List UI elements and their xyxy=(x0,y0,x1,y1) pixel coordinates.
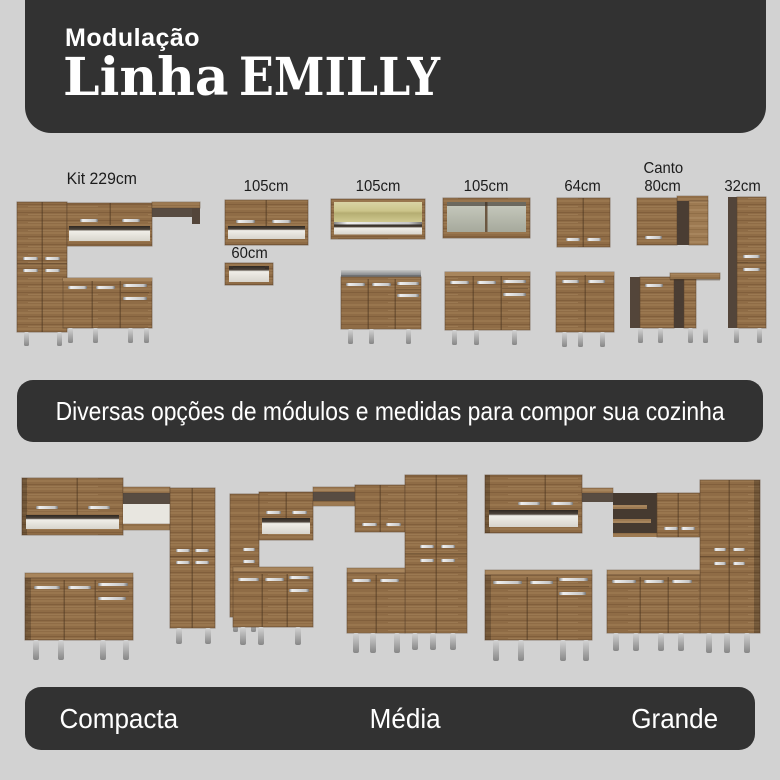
banner-text: Diversas opções de módulos e medidas par… xyxy=(56,396,725,427)
module-105-sink-illustration xyxy=(331,199,425,344)
module-label-60: 60cm xyxy=(210,245,290,263)
module-label-64: 64cm xyxy=(543,178,623,196)
module-32-illustration xyxy=(728,197,766,343)
module-label-32: 32cm xyxy=(703,178,780,196)
module-kit-229-illustration xyxy=(17,202,200,346)
size-bar: Compacta Média Grande xyxy=(25,687,755,750)
kitchen-compacta-illustration xyxy=(22,478,215,660)
module-label-kit-229: Kit 229cm xyxy=(42,170,162,188)
module-label-canto-80: Canto80cm xyxy=(623,160,703,196)
module-label-105-2: 105cm xyxy=(338,178,418,196)
module-105-wall-illustration xyxy=(225,200,308,285)
page: Modulação LinhaEMILLY xyxy=(0,0,780,780)
module-105-base-illustration xyxy=(443,198,530,345)
module-label-105-1: 105cm xyxy=(226,178,306,196)
kitchen-grande-illustration xyxy=(485,475,760,661)
module-64-illustration xyxy=(556,198,614,347)
size-label-compacta: Compacta xyxy=(59,703,178,735)
module-label-105-3: 105cm xyxy=(446,178,526,196)
banner: Diversas opções de módulos e medidas par… xyxy=(17,380,763,442)
size-label-grande: Grande xyxy=(631,703,718,735)
size-label-media: Média xyxy=(370,703,441,735)
module-canto-80-illustration xyxy=(630,196,720,343)
kitchen-media-illustration xyxy=(230,475,467,653)
